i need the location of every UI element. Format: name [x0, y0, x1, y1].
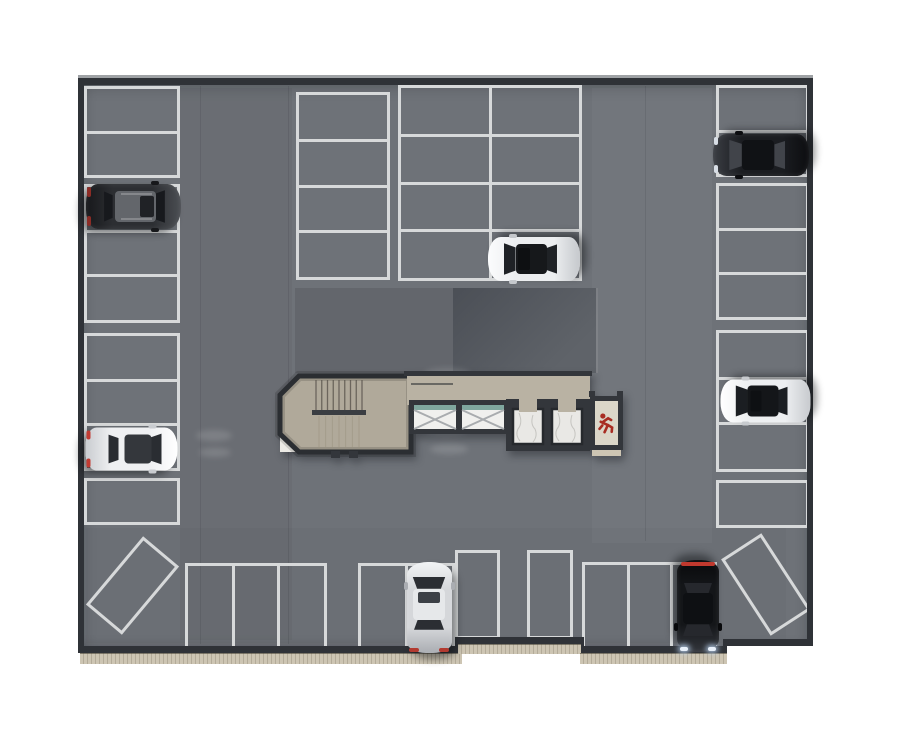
- car-taillight: [439, 648, 449, 652]
- car-mirror-right: [735, 131, 743, 135]
- car-body: [85, 428, 177, 471]
- tire-mark-smudge: [199, 448, 231, 457]
- car-mirror-right: [741, 377, 749, 381]
- exit-shaft-floor: [595, 401, 618, 445]
- parking-space-group-B2b: [455, 550, 500, 639]
- car-mirror-right: [509, 234, 517, 238]
- stair-door-jamb: [349, 451, 358, 458]
- perimeter-wall: [78, 78, 84, 653]
- parking-space-divider: [670, 565, 673, 650]
- parking-space-divider: [87, 131, 177, 134]
- car-rear-window: [108, 433, 118, 465]
- car-sunroof: [140, 195, 154, 217]
- parking-space-diagonal-D1: [85, 536, 178, 634]
- car-mirror-left: [148, 425, 156, 429]
- parking-space-group-R4: [716, 480, 809, 528]
- car-black-sedan-right: [713, 134, 809, 176]
- parking-space-divider: [277, 566, 280, 650]
- car-taillight: [86, 430, 90, 439]
- car-headlight: [714, 165, 717, 173]
- parking-space-divider: [719, 228, 806, 231]
- parking-space-group-M1: [296, 92, 390, 280]
- exterior-curb-strip: [458, 644, 581, 654]
- exterior-curb-strip: [580, 653, 727, 664]
- parking-garage-floor-plan: [0, 0, 900, 740]
- parking-space-divider: [87, 379, 177, 382]
- car-body: [677, 560, 719, 652]
- car-mirror-left: [741, 422, 749, 426]
- parking-space-divider: [87, 423, 177, 426]
- car-body: [86, 184, 181, 229]
- elevator-cabin: [513, 409, 543, 444]
- elevator-cabin: [552, 409, 582, 444]
- corridor-top-wall: [404, 371, 592, 376]
- car-sunroof: [418, 592, 440, 604]
- car-rear-window: [774, 139, 785, 170]
- parking-space-divider: [719, 130, 806, 133]
- car-headlight: [708, 647, 716, 650]
- parking-space-divider: [299, 185, 387, 188]
- parking-space-group-R2: [716, 183, 809, 320]
- shaft-glass-strip: [462, 405, 504, 410]
- car-roof: [124, 435, 152, 463]
- car-body: [720, 380, 810, 423]
- exit-shaft-threshold: [592, 450, 621, 456]
- building-core: [268, 362, 632, 472]
- car-mirror-left: [404, 582, 408, 590]
- car-body: [713, 134, 809, 176]
- parking-space-group-B3a: [527, 550, 573, 639]
- car-rear-window: [547, 243, 557, 276]
- car-rear-window: [778, 385, 788, 417]
- car-white-sports: [85, 428, 177, 471]
- car-rear-window: [104, 189, 113, 222]
- stair-door-jamb: [331, 451, 340, 458]
- exit-shaft-stub: [617, 391, 623, 397]
- car-body: [488, 237, 580, 281]
- parking-space-diagonal-D2: [721, 533, 811, 635]
- parking-space-divider: [719, 272, 806, 275]
- floor-shadow-zone: [453, 288, 598, 373]
- car-mirror-right: [151, 228, 159, 232]
- concrete-seam: [200, 86, 201, 644]
- floor-shadow-zone: [596, 288, 598, 373]
- shaft-glass-strip: [414, 405, 456, 410]
- car-sunroof: [518, 248, 530, 269]
- parking-space-divider: [87, 274, 177, 277]
- car-dark-gray-suv: [86, 184, 181, 229]
- car-headlight: [714, 137, 717, 145]
- stair-landing-bar: [312, 410, 366, 415]
- car-mirror-right: [674, 623, 678, 631]
- car-windshield: [735, 384, 747, 418]
- car-headlight: [680, 647, 688, 650]
- car-white-black-roof-center: [488, 237, 580, 281]
- car-mirror-left: [151, 181, 159, 185]
- car-windshield: [411, 577, 447, 589]
- car-mirror-left: [735, 175, 743, 179]
- perimeter-wall: [455, 637, 583, 644]
- car-body: [407, 562, 452, 653]
- concrete-seam: [645, 86, 646, 541]
- perimeter-wall: [78, 78, 813, 85]
- elevator-door-opening: [558, 399, 576, 412]
- parking-space-group-L1: [84, 86, 180, 178]
- floor-shadow-zone: [295, 288, 453, 373]
- car-roof-rail: [121, 192, 151, 194]
- car-roof-rail: [121, 218, 151, 220]
- corridor-edge-line: [411, 383, 453, 385]
- car-taillight: [86, 458, 90, 467]
- car-roof: [742, 140, 775, 169]
- car-sunroof: [750, 391, 762, 412]
- perimeter-wall: [723, 639, 813, 646]
- car-taillight: [86, 216, 90, 226]
- parking-space-group-B1: [185, 563, 327, 653]
- car-taillight: [409, 648, 419, 652]
- car-windshield: [681, 624, 715, 636]
- parking-space-divider: [87, 230, 177, 233]
- parking-space-divider: [299, 139, 387, 142]
- car-mirror-right: [451, 582, 455, 590]
- car-mirror-left: [509, 280, 517, 284]
- car-rear-window: [682, 583, 713, 593]
- perimeter-wall: [78, 646, 461, 653]
- car-windshield: [729, 138, 741, 172]
- parking-space-group-L4: [84, 478, 180, 525]
- car-taillight-strip: [681, 562, 715, 566]
- elevator-door-opening: [519, 399, 537, 412]
- car-roof: [683, 593, 712, 624]
- car-rear-window: [412, 620, 445, 630]
- car-silver-bottom: [407, 562, 452, 653]
- car-mirror-left: [718, 623, 722, 631]
- car-black-bottom: [677, 560, 719, 652]
- parking-space-divider: [719, 422, 806, 425]
- car-mirror-right: [148, 470, 156, 474]
- car-windshield: [504, 241, 516, 276]
- tire-mark-smudge: [196, 430, 232, 441]
- parking-space-divider: [299, 230, 387, 233]
- parking-space-divider: [232, 566, 235, 650]
- parking-space-divider: [627, 565, 630, 650]
- exit-shaft-stub: [589, 391, 595, 397]
- car-taillight: [86, 186, 90, 196]
- exterior-curb-strip: [80, 653, 462, 664]
- floor-tone-patch: [592, 88, 712, 543]
- car-white-black-roof-right: [720, 380, 810, 423]
